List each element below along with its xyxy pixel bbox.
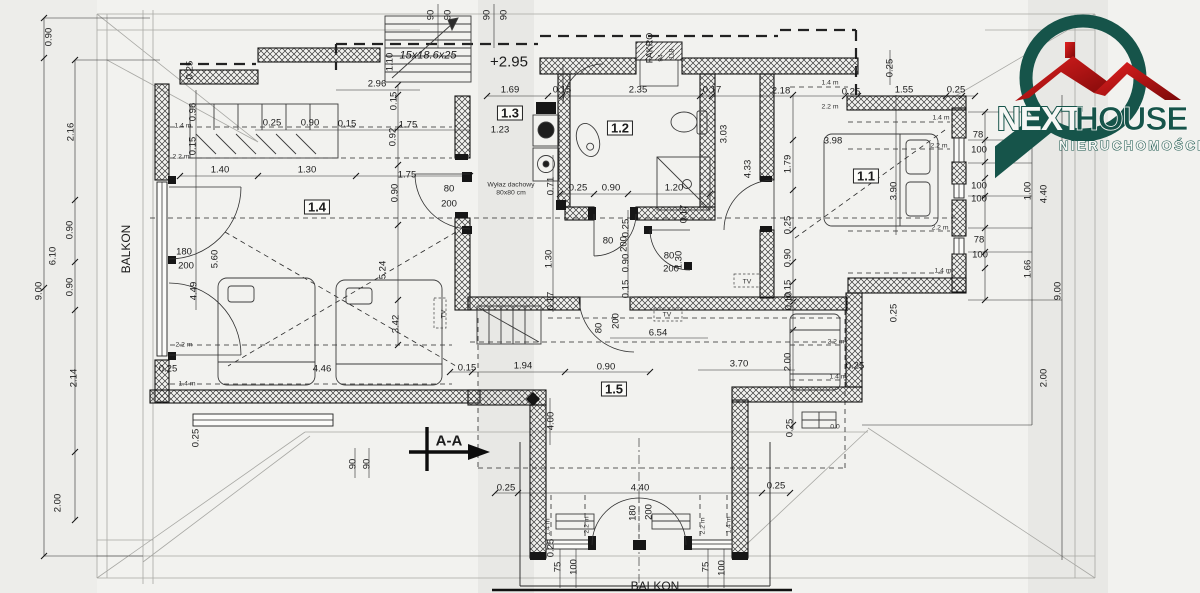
- floor-plan-page: 9090909015x18.6x25+2.952.961.100.251.690…: [0, 0, 1200, 593]
- room-label-1.5: 1.5: [601, 382, 627, 397]
- dimension-label: 90: [482, 10, 492, 21]
- dimension-label: 80: [444, 184, 455, 194]
- dimension-label: 0.90: [597, 362, 616, 372]
- dimension-label: 94: [659, 54, 666, 62]
- dimension-label: 2.00: [783, 353, 793, 372]
- annotation-label: FAKRO: [646, 33, 655, 64]
- dimension-label: 2.2 m: [931, 144, 948, 151]
- dimension-label: 200: [644, 504, 654, 520]
- dimension-label: 0.25: [889, 304, 899, 323]
- dimension-label: 0.25: [546, 539, 556, 558]
- dimension-label: 1.4 m: [933, 116, 950, 123]
- dimension-label: 1.4 m: [822, 81, 839, 88]
- dimension-label: 0.25: [947, 85, 966, 95]
- dimension-label: 1.69: [501, 85, 520, 95]
- dimension-label: 1.75: [399, 120, 418, 130]
- nexthouse-logo: NEXT HOUSE NIERUCHOMOŚCI: [995, 0, 1200, 195]
- dimension-label: 0.25: [159, 364, 178, 374]
- dimension-label: 118: [670, 49, 677, 60]
- dimension-label: 100: [972, 250, 988, 260]
- dimension-label: 0.25: [783, 216, 793, 235]
- dimension-label: 1.75: [398, 170, 417, 180]
- dimension-label: 6.10: [48, 247, 58, 266]
- annotation-label: +2.95: [490, 55, 528, 70]
- dimension-label: 1.94: [514, 361, 533, 371]
- dimension-label: 1.55: [895, 85, 914, 95]
- dimension-label: 1.20: [665, 183, 684, 193]
- sink: [572, 120, 603, 159]
- dimension-label: 0.25: [497, 483, 516, 493]
- dimension-label: 0.25: [569, 183, 588, 193]
- dimension-label: 0.25: [767, 481, 786, 491]
- dimension-label: 0.15: [553, 85, 572, 95]
- dimension-label: 2.2 m: [585, 517, 592, 534]
- dimension-label: 200: [611, 313, 621, 329]
- dimension-label: 0.90: [65, 278, 75, 297]
- bed-room14-right: [336, 280, 442, 385]
- dimension-label: 0.25: [842, 87, 861, 97]
- brand-subtitle: NIERUCHOMOŚCI: [1059, 138, 1200, 153]
- dimension-label: 2.2 m: [701, 518, 708, 535]
- room-label-1.1: 1.1: [853, 169, 879, 184]
- dimension-label: 200: [619, 236, 629, 252]
- dimension-label: 0.90: [301, 118, 320, 128]
- dimension-label: 3.98: [824, 136, 843, 146]
- dimension-label: 2.00: [1039, 369, 1049, 388]
- room-label-1.4: 1.4: [304, 200, 330, 215]
- dimension-label: 3.70: [730, 359, 749, 369]
- dimension-label: 4.46: [313, 364, 332, 374]
- dimension-label: 100: [717, 560, 727, 576]
- dimension-label: 2.2 m: [932, 226, 949, 233]
- dimension-label: 0.90: [65, 221, 75, 240]
- bed-room14-left: [218, 278, 315, 385]
- dimension-label: 0.90: [783, 249, 793, 268]
- dimension-label: 1.23: [491, 125, 510, 135]
- dimension-label: 0.25: [846, 361, 865, 371]
- dimension-label: 2.2 m: [822, 105, 839, 112]
- dimension-label: 2.2 m: [176, 343, 193, 350]
- dimension-label: 2.35: [629, 85, 648, 95]
- dimension-label: 1.66: [1023, 260, 1033, 279]
- dimension-label: 0.90: [602, 183, 621, 193]
- room-label-1.2: 1.2: [607, 121, 633, 136]
- dimension-label: 90: [426, 10, 436, 21]
- dimension-label: 1.4 m: [175, 124, 192, 131]
- dimension-label: 6.54: [649, 328, 668, 338]
- dimension-label: TV: [743, 280, 752, 287]
- dimension-label: 0.15: [188, 137, 198, 156]
- dimension-label: 0.17: [546, 292, 556, 311]
- dimension-label: 0.15: [338, 119, 357, 129]
- dimension-label: 2.96: [368, 79, 387, 89]
- dimension-label: 4.00: [546, 412, 556, 431]
- dimension-label: 0.25: [263, 118, 282, 128]
- brand-house: HOUSE: [1075, 100, 1187, 137]
- dimension-label: 0.17: [703, 85, 722, 95]
- dimension-label: 2.14: [69, 369, 79, 388]
- dimension-label: 9.00: [1053, 282, 1063, 301]
- dimension-label: 100: [971, 181, 987, 191]
- dimension-label: 0.90: [621, 254, 631, 273]
- dimension-label: 5.24: [378, 261, 388, 280]
- dimension-label: 0.90: [44, 28, 54, 47]
- dimension-label: Wyłaz dachowy: [487, 183, 534, 190]
- dimension-label: 1.4 m: [727, 517, 734, 534]
- dimension-label: 200: [178, 261, 194, 271]
- dimension-label: 0.15: [458, 363, 477, 373]
- dimension-label: 180: [628, 505, 638, 521]
- dimension-label: 0.17: [679, 205, 689, 224]
- dimension-label: 2.16: [66, 123, 76, 142]
- dimension-label: 0.71: [546, 177, 556, 196]
- dimension-label: 3.42: [391, 315, 401, 334]
- annotation-label: BALKON: [631, 580, 680, 592]
- dimension-label: 2.00: [53, 494, 63, 513]
- annotation-label: A-A: [436, 434, 463, 449]
- dimension-label: 80: [603, 236, 614, 246]
- dimension-label: 0.15: [389, 92, 399, 111]
- dimension-label: 2.2 m: [828, 340, 845, 347]
- dimension-label: 0.25: [885, 59, 895, 78]
- dimension-label: 2.2 m: [173, 155, 190, 162]
- dimension-label: 0 0: [830, 425, 839, 432]
- dimension-label: 0.10: [784, 292, 794, 311]
- dimension-label: 75: [553, 562, 563, 573]
- dimension-label: 2.18: [772, 86, 791, 96]
- dimension-label: 1.30: [298, 165, 317, 175]
- room-label-1.3: 1.3: [497, 106, 523, 121]
- dimension-label: 3.03: [719, 125, 729, 144]
- dimension-label: 90: [443, 10, 453, 21]
- brand-next: NEXT: [997, 100, 1082, 137]
- dimension-label: 100: [569, 559, 579, 575]
- dimension-label: 1.4 m: [935, 269, 952, 276]
- dimension-label: 5.60: [210, 250, 220, 269]
- dimension-label: 1.10: [385, 53, 395, 72]
- dimension-label: 90: [362, 459, 372, 470]
- dimension-label: 0.25: [621, 219, 631, 238]
- dimension-label: 200: [441, 199, 457, 209]
- dimension-label: 1.4 m: [179, 382, 196, 389]
- dimension-label: 0.92: [388, 128, 398, 147]
- dimension-label: 4.33: [743, 160, 753, 179]
- dimension-label: TV: [663, 313, 672, 320]
- dimension-label: 1.4 m: [546, 519, 553, 536]
- dimension-label: 0.96: [188, 103, 198, 122]
- dimension-label: 180: [176, 247, 192, 257]
- dimension-label: 9.00: [34, 282, 44, 301]
- dimension-label: 75: [701, 562, 711, 573]
- toilet: [671, 112, 697, 132]
- dimension-label: 1.30: [544, 250, 554, 269]
- dimension-label: 3.90: [889, 182, 899, 201]
- dimension-label: 1.40: [211, 165, 230, 175]
- dimension-label: TV: [442, 310, 449, 319]
- dimension-label: 78: [973, 130, 984, 140]
- dimension-label: 0.25: [185, 61, 195, 80]
- dimension-label: 1.79: [783, 155, 793, 174]
- dimension-label: 4.49: [189, 282, 199, 301]
- dimension-label: 90: [348, 459, 358, 470]
- dimension-label: 78: [974, 235, 985, 245]
- dimension-label: 0.15: [621, 280, 631, 299]
- dimension-label: 80x80 cm: [496, 191, 525, 198]
- dimension-label: 0.25: [191, 429, 201, 448]
- dimension-label: 4.40: [631, 483, 650, 493]
- dimension-label: 100: [971, 145, 987, 155]
- dimension-label: 80: [594, 323, 604, 334]
- dimension-label: 1.30: [674, 251, 684, 270]
- annotation-label: 15x18.6x25: [400, 51, 457, 62]
- planter-right: [652, 514, 690, 529]
- dimension-label: 0.25: [785, 419, 795, 438]
- dimension-label: 100: [971, 194, 987, 204]
- dimension-label: 0.90: [390, 184, 400, 203]
- dimension-label: 1.4 m: [830, 375, 847, 382]
- annotation-label: BALKON: [120, 225, 132, 274]
- dimension-label: 90: [499, 10, 509, 21]
